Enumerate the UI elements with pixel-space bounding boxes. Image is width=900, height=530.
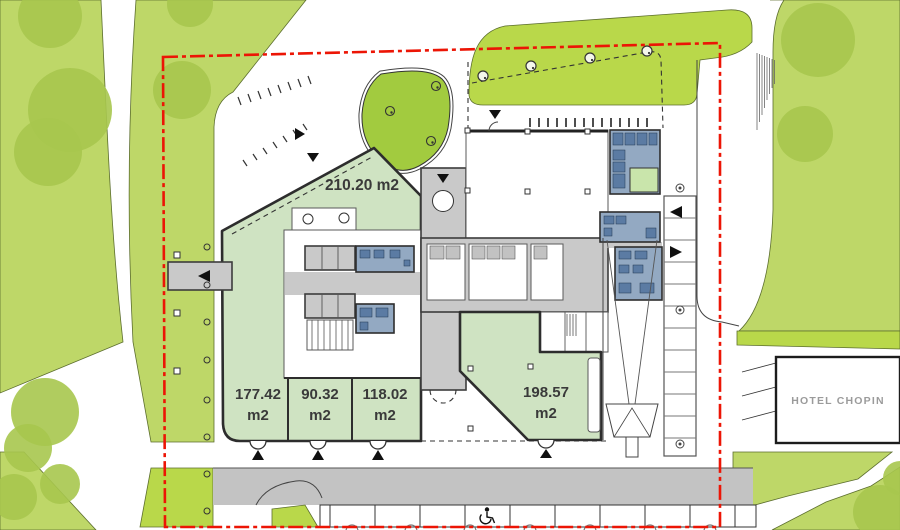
unit-area-unit: m2 [374,407,396,424]
column-icon [433,191,454,212]
curb-lawn-patch [272,505,318,527]
hotel-chopin-building: HOTEL CHOPIN [742,357,900,443]
unit-area-unit: m2 [309,407,331,424]
parking-stall-ticks [530,118,647,127]
tree-icon [153,61,211,119]
unit-area-unit: m2 [247,407,269,424]
lawn-strip [140,468,213,527]
crosswalk-ticks [238,76,311,166]
tree-icon [14,118,82,186]
tree-icon [4,424,52,472]
site-plan: HOTEL CHOPIN 210.20 m2 177.42 m2 90.32 m… [0,0,900,530]
revolving-door [430,390,456,403]
unit-area-label: 210.20 m2 [325,177,399,194]
unit-area-label: 118.02 [362,386,407,403]
entrance-arrow-icon [540,449,552,458]
unit-area-label: 90.32 [301,386,339,403]
lawn-area [0,0,123,393]
hotel-label: HOTEL CHOPIN [791,395,885,407]
hall [466,130,608,238]
unit-area-unit: m2 [535,405,557,422]
tree-icon [40,464,80,504]
entrance-arrow-icon [252,450,384,460]
unit-area-label: 198.57 [523,384,569,401]
road-direction-arrows [295,128,319,162]
side-parking [664,184,696,456]
arrow-down-icon [489,110,501,119]
tree-icon [777,106,833,162]
arrow-down-icon [307,153,319,162]
stairs [307,320,353,350]
slope-hatching [757,53,775,130]
unit-area-label: 177.42 [235,386,281,403]
building-right-wing [421,110,696,458]
green-room [630,168,658,192]
lawn-parking-band [469,10,752,105]
arrow-right-icon [295,128,305,140]
hotel-stairs [742,363,776,420]
hotel-lawn-strip [737,331,900,349]
tree-icon [781,3,855,77]
